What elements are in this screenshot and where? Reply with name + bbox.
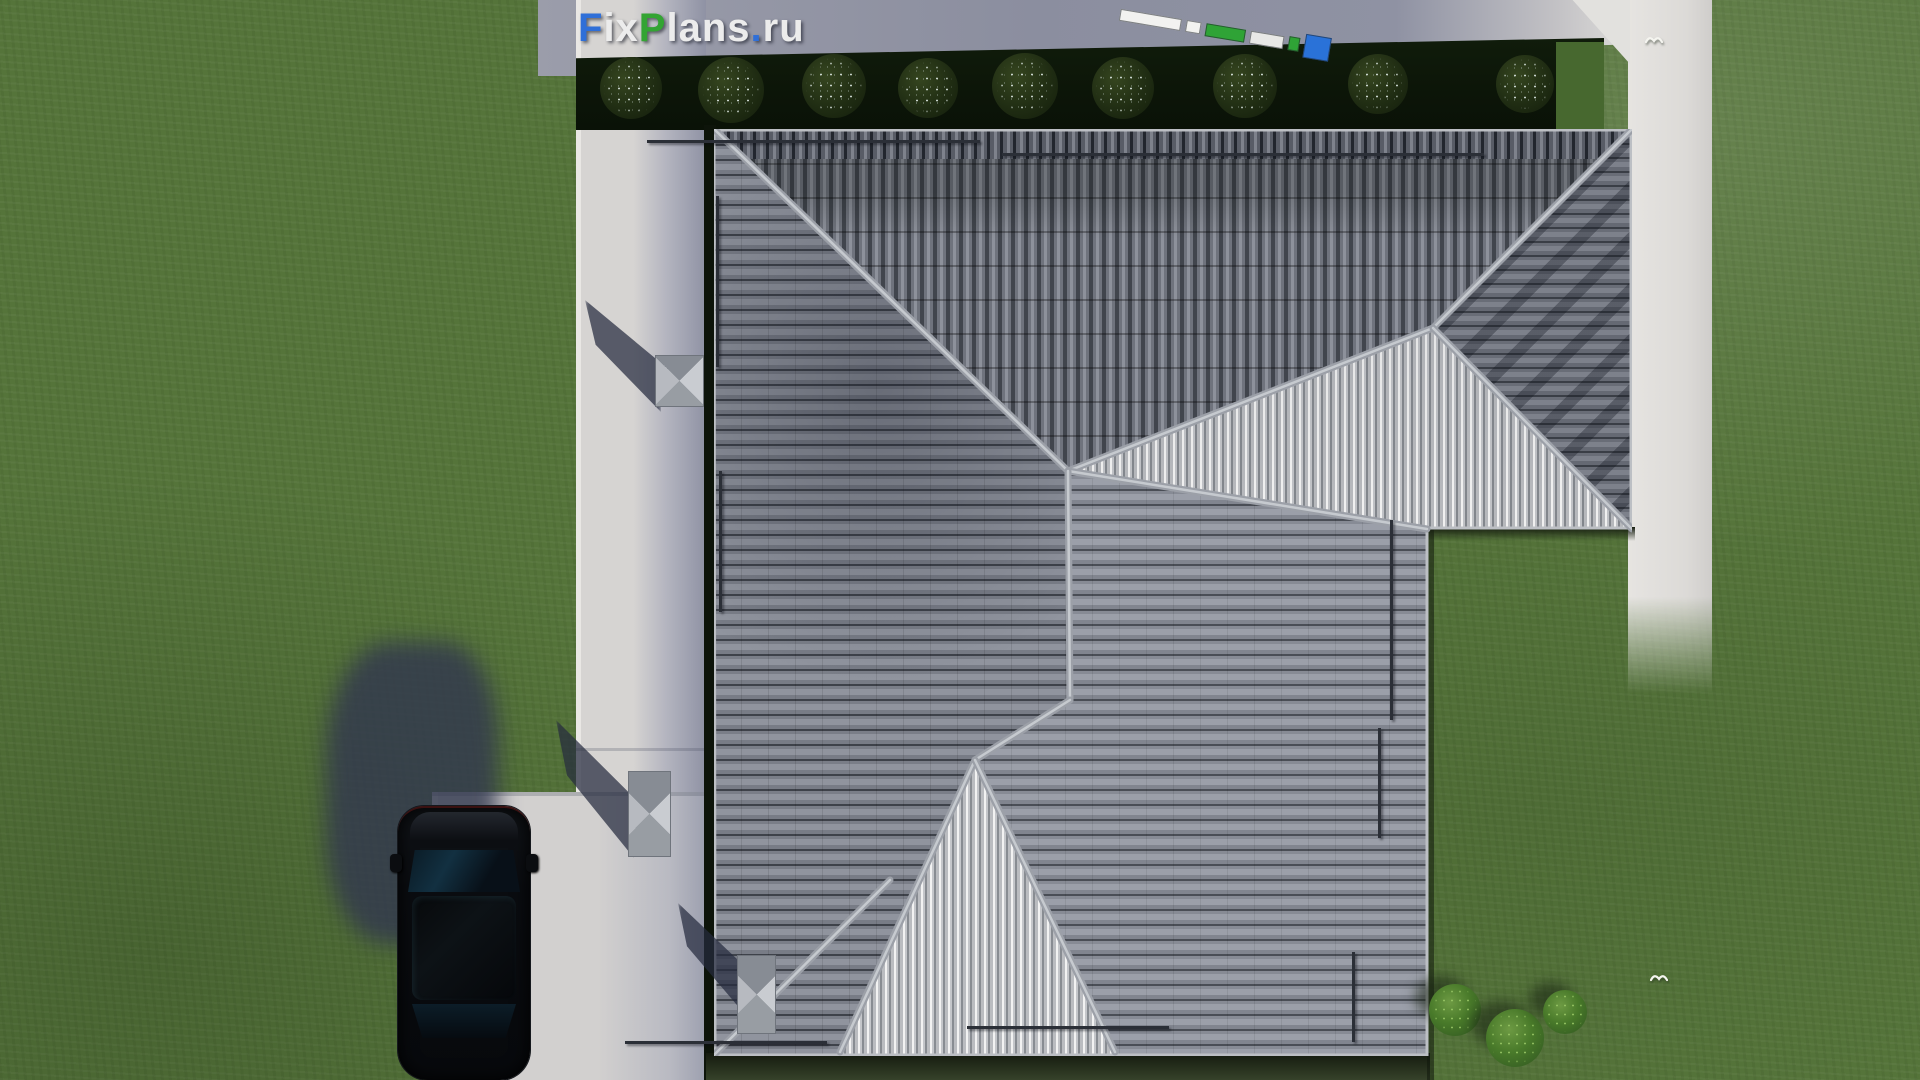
snow-rail-horizontal — [625, 1041, 827, 1044]
car-hood — [410, 812, 518, 848]
hedge-bush — [802, 54, 866, 118]
snow-rail-horizontal — [967, 1026, 1169, 1029]
snow-rail-vertical — [719, 471, 722, 612]
right-walkway — [1628, 0, 1712, 694]
tape-segment — [1302, 34, 1332, 62]
snow-rail-horizontal — [647, 140, 980, 143]
chimney — [628, 771, 671, 857]
bird — [1645, 34, 1663, 45]
bird — [1650, 972, 1668, 983]
hedge-bush — [1213, 54, 1277, 118]
tape-segment — [1287, 36, 1300, 52]
watermark-letter-segment: lans — [666, 6, 750, 50]
hedge-bush — [898, 58, 958, 118]
watermark-letter-segment: F — [578, 6, 603, 50]
hedge-bush — [1496, 55, 1554, 113]
walkway-seam — [576, 748, 704, 751]
watermark-letter-segment: ix — [603, 6, 638, 50]
aerial-render-scene: { "scene": { "description": "Top-down 3D… — [0, 0, 1920, 1080]
car-rear-window — [412, 1004, 516, 1038]
black-suv-top-view — [398, 806, 530, 1080]
watermark-letter-segment: ru — [763, 6, 805, 50]
tape-segment — [1205, 23, 1247, 42]
garden-bush — [1543, 990, 1587, 1034]
snow-rail-vertical — [1352, 952, 1355, 1042]
hedge-bush — [698, 57, 764, 123]
watermark-letter-segment: . — [751, 6, 763, 50]
hedge-bush — [1348, 54, 1408, 114]
snow-rail-horizontal — [1002, 153, 1484, 156]
tape-segment — [1249, 30, 1285, 48]
hedge-light-patch — [1556, 42, 1604, 130]
chimney — [655, 355, 704, 407]
hedge-bush — [1092, 57, 1154, 119]
hedge-bush — [600, 57, 662, 119]
car-roof-panel — [412, 896, 516, 1000]
snow-rail-vertical — [1378, 728, 1381, 838]
snow-rail-vertical — [716, 196, 719, 367]
car-mirror-right — [526, 854, 538, 872]
roof-ridge-lines — [714, 129, 1632, 1056]
snow-rail-vertical — [1390, 520, 1393, 720]
car-windshield — [408, 850, 520, 892]
fixplans-watermark: FixPlans.ru — [578, 6, 805, 51]
garden-bush — [1486, 1009, 1544, 1067]
hedge-bush — [992, 53, 1058, 119]
car-mirror-left — [390, 854, 402, 872]
tape-segment — [1185, 20, 1202, 34]
roof-south-eave-shadow — [706, 1053, 1430, 1080]
tape-segment — [1119, 9, 1182, 31]
watermark-letter-segment: P — [639, 6, 667, 50]
chimney — [737, 955, 776, 1034]
hip-roof — [714, 129, 1632, 1056]
